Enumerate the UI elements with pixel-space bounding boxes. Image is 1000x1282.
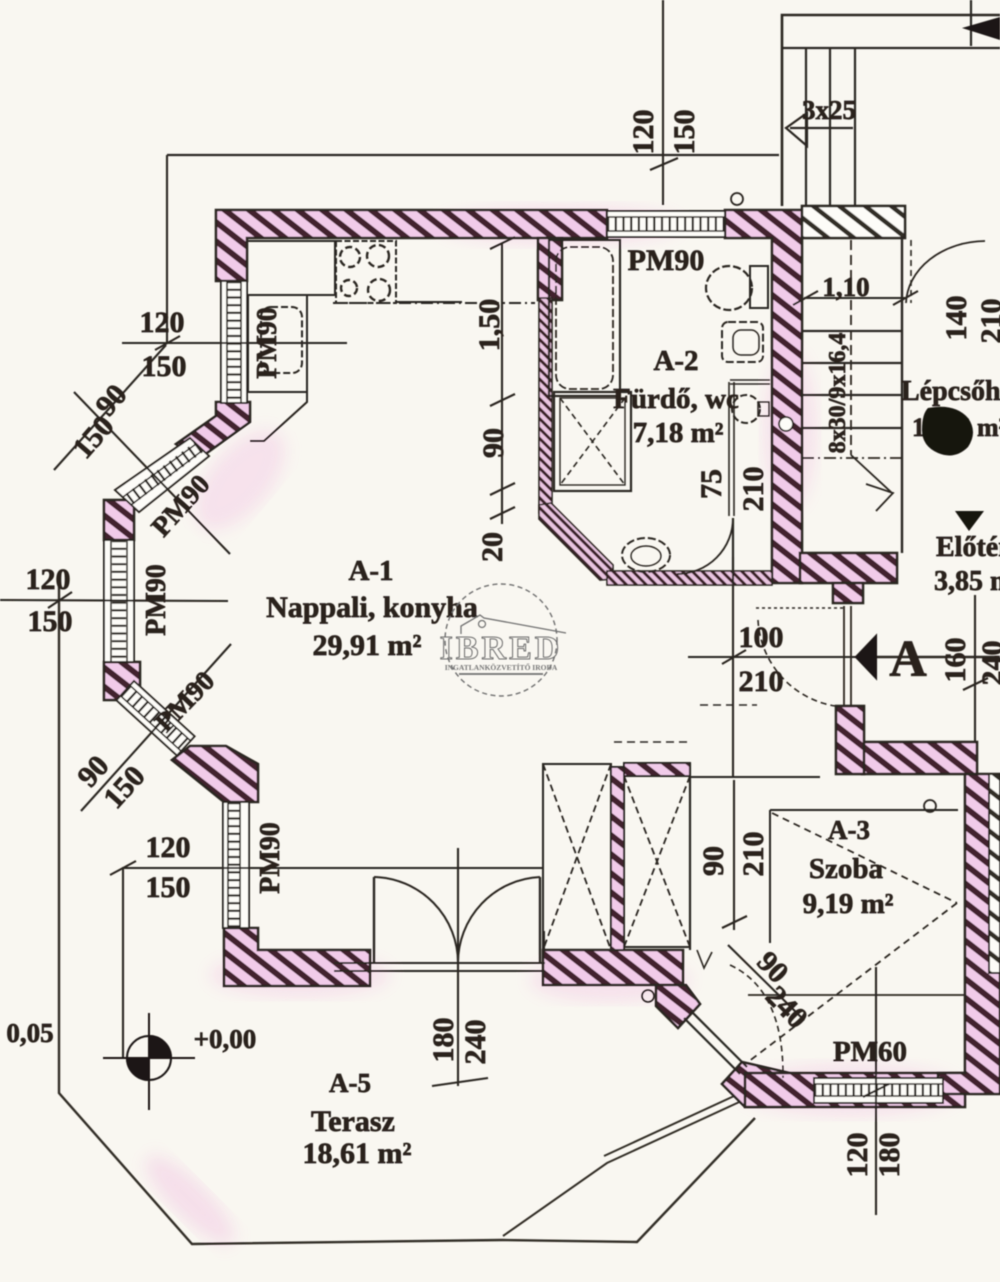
svg-text:A: A <box>889 631 927 688</box>
svg-text:PM90: PM90 <box>141 564 172 636</box>
svg-text:150: 150 <box>28 605 73 638</box>
svg-text:150: 150 <box>142 350 187 383</box>
svg-text:PM60: PM60 <box>833 1036 907 1068</box>
svg-text:240: 240 <box>976 641 1000 686</box>
svg-text:240: 240 <box>459 1020 492 1065</box>
svg-text:Terasz: Terasz <box>311 1105 395 1138</box>
svg-text:Nappali, konyha: Nappali, konyha <box>266 591 478 624</box>
svg-text:120: 120 <box>140 306 185 339</box>
svg-text:150: 150 <box>668 110 701 155</box>
svg-text:Fürdő, wc: Fürdő, wc <box>613 383 739 415</box>
svg-text:29,91 m²: 29,91 m² <box>313 629 422 662</box>
svg-text:90: 90 <box>697 846 730 876</box>
svg-text:Előtér: Előtér <box>936 532 1000 563</box>
svg-text:20: 20 <box>476 532 509 562</box>
svg-text:210: 210 <box>975 299 1000 344</box>
svg-text:Lépcsőház: Lépcsőház <box>901 376 1000 407</box>
svg-text:150: 150 <box>146 871 191 904</box>
svg-text:PM90: PM90 <box>252 307 283 379</box>
svg-text:180: 180 <box>427 1018 460 1063</box>
svg-text:210: 210 <box>737 832 770 877</box>
svg-text:3x25: 3x25 <box>802 95 856 125</box>
svg-text:180: 180 <box>873 1133 906 1178</box>
svg-text:18,61 m²: 18,61 m² <box>303 1137 412 1170</box>
svg-text:PM90: PM90 <box>255 822 286 894</box>
svg-text:A-5: A-5 <box>329 1068 371 1098</box>
svg-text:7,18 m²: 7,18 m² <box>633 417 724 449</box>
svg-text:210: 210 <box>737 467 770 512</box>
svg-text:INGATLANKÖZVETÍTŐ IRODA: INGATLANKÖZVETÍTŐ IRODA <box>445 662 558 672</box>
svg-text:1,50: 1,50 <box>473 299 506 352</box>
svg-text:140: 140 <box>940 296 973 341</box>
svg-text:120: 120 <box>841 1133 874 1178</box>
svg-text:9,19 m²: 9,19 m² <box>803 888 894 920</box>
svg-text:100: 100 <box>739 621 784 654</box>
svg-text:0,05: 0,05 <box>6 1018 53 1048</box>
svg-text:A-2: A-2 <box>653 345 698 377</box>
svg-text:PM90: PM90 <box>628 244 705 277</box>
svg-text:1,10: 1,10 <box>822 272 869 302</box>
svg-text:120: 120 <box>627 110 660 155</box>
svg-text:75: 75 <box>695 469 728 499</box>
svg-text:120: 120 <box>26 563 71 596</box>
svg-text:8x30/9x16,4: 8x30/9x16,4 <box>825 333 851 454</box>
svg-text:120: 120 <box>146 831 191 864</box>
svg-text:Szoba: Szoba <box>809 853 884 885</box>
svg-text:+0,00: +0,00 <box>194 1024 257 1054</box>
svg-text:A-3: A-3 <box>828 815 870 845</box>
svg-text:A-1: A-1 <box>348 555 393 587</box>
svg-text:210: 210 <box>739 665 784 698</box>
svg-text:90: 90 <box>477 428 510 458</box>
svg-text:160: 160 <box>939 638 972 683</box>
svg-text:IBRED: IBRED <box>440 630 563 667</box>
svg-text:3,85 m²: 3,85 m² <box>934 566 1000 597</box>
